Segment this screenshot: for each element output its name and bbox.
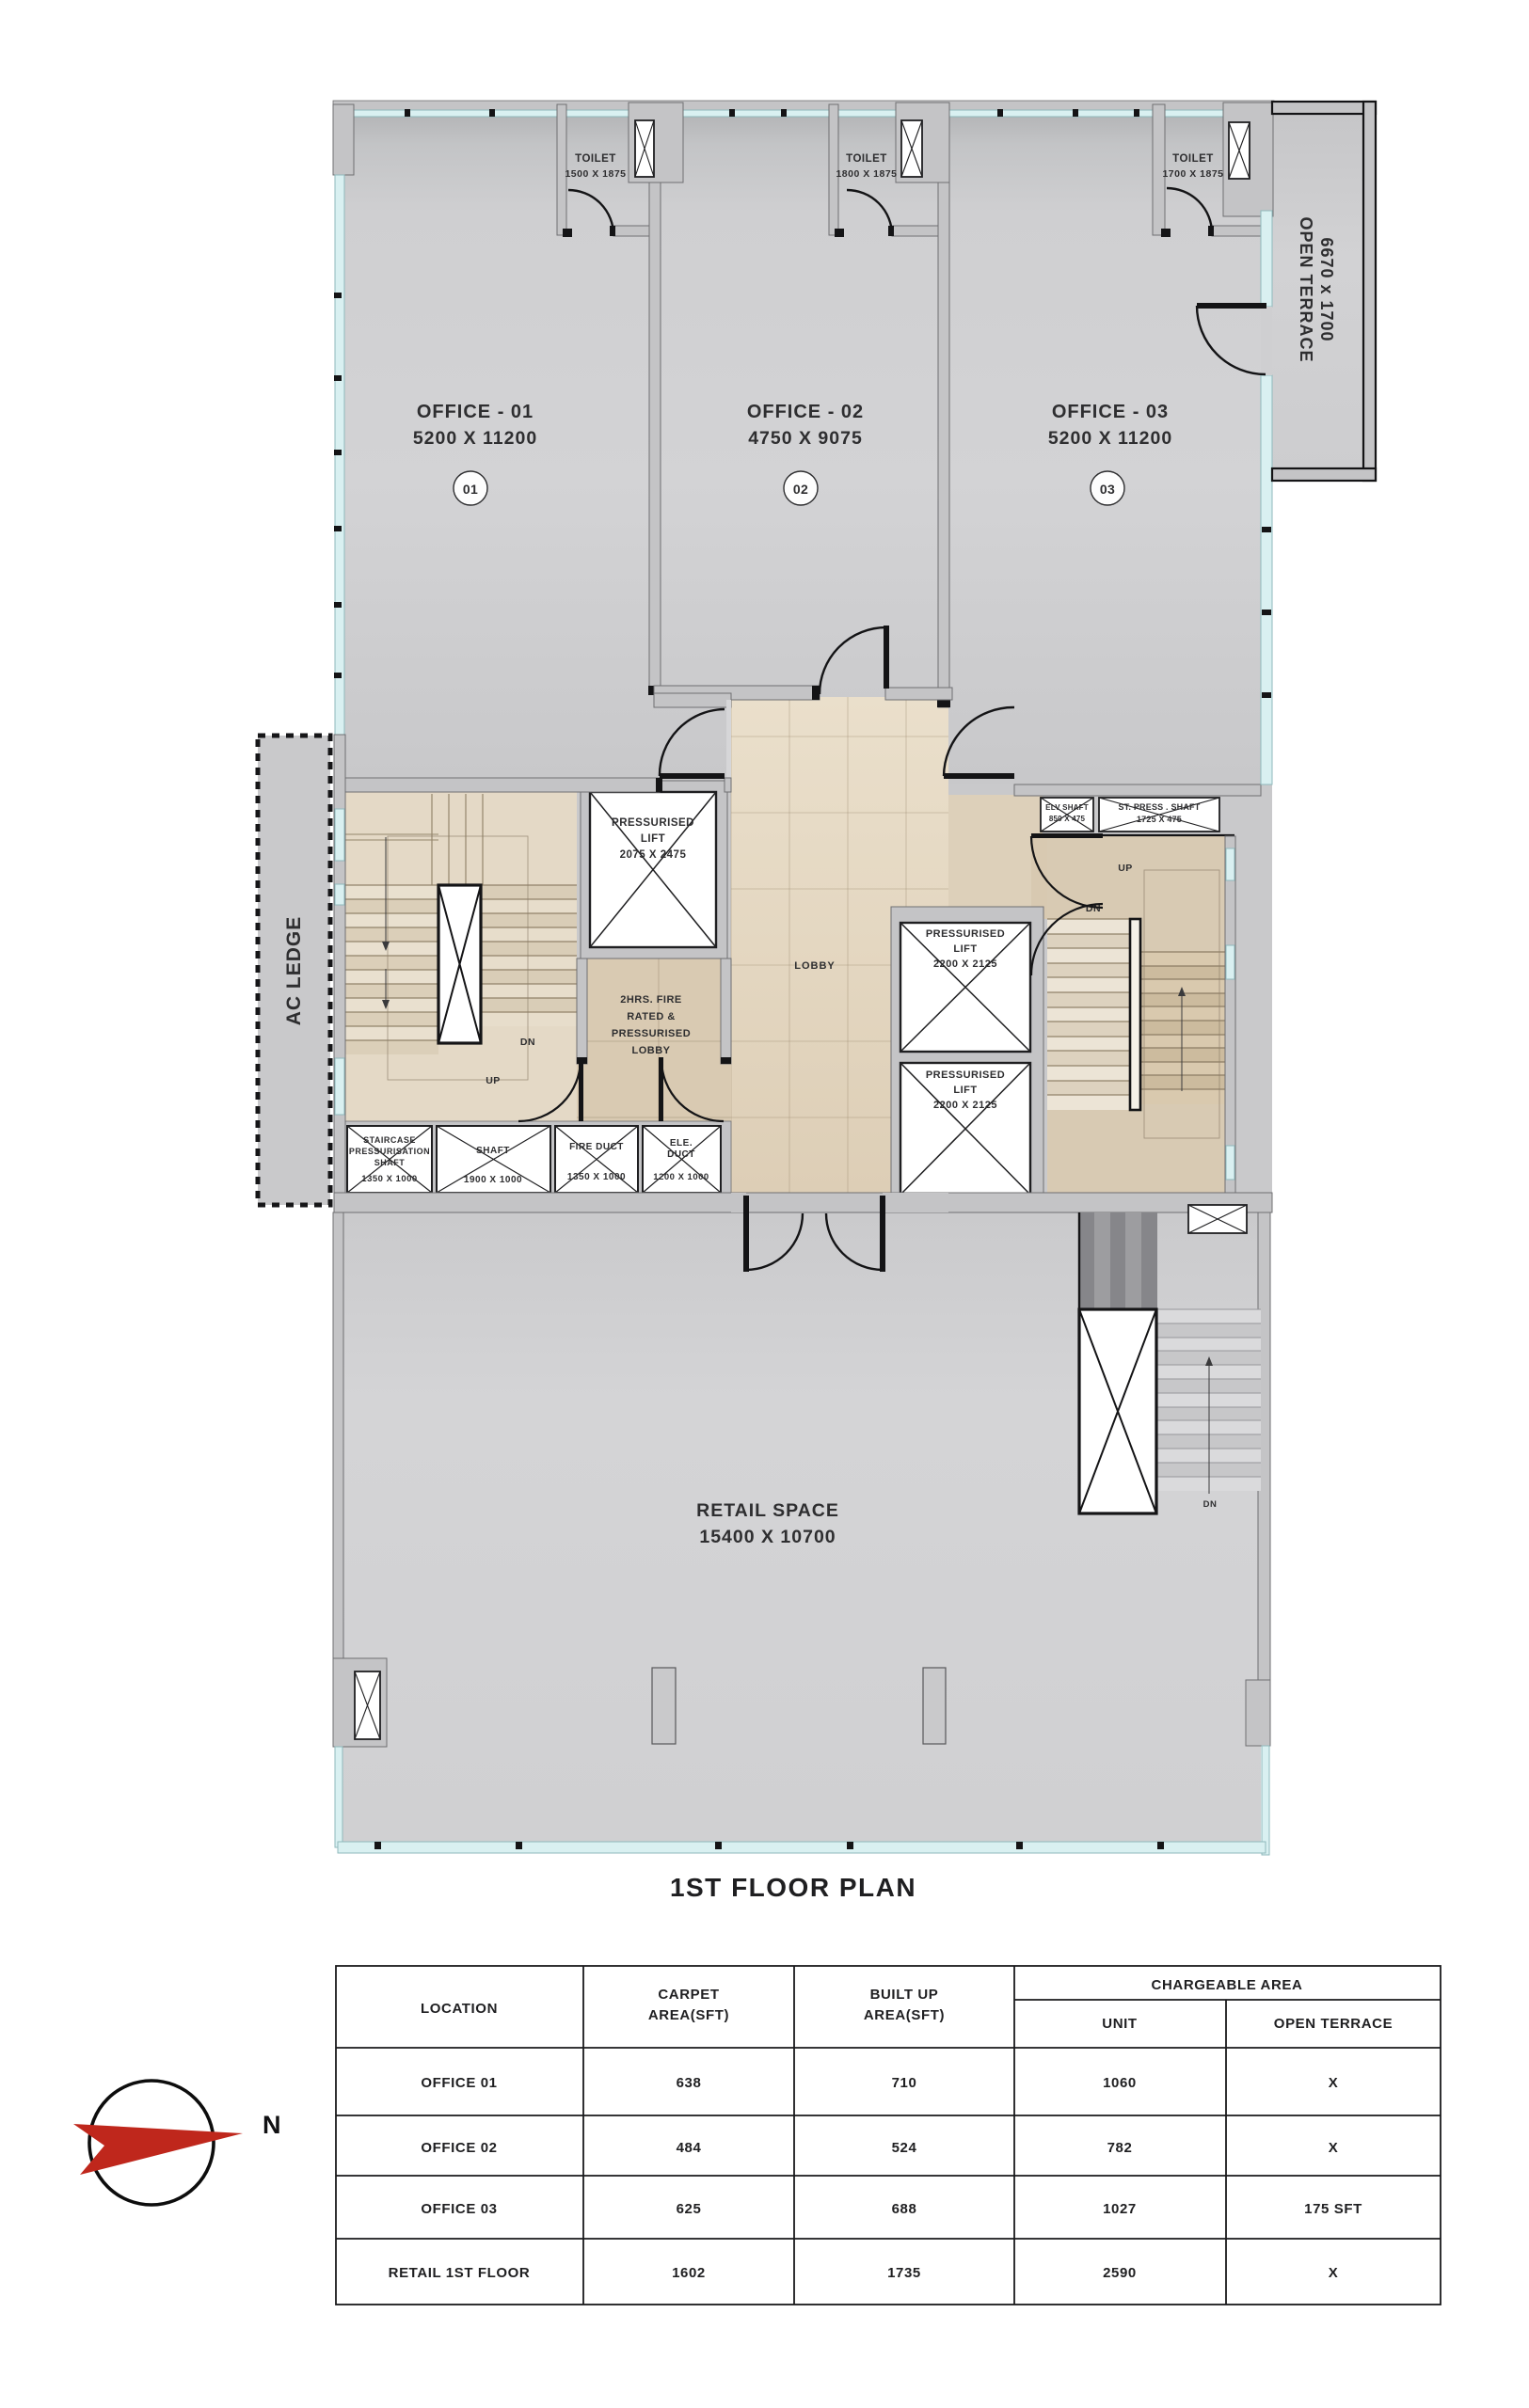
svg-text:1200 X 1000: 1200 X 1000 (653, 1172, 709, 1182)
svg-text:ST. PRESS . SHAFT: ST. PRESS . SHAFT (1119, 802, 1201, 812)
svg-text:UNIT: UNIT (1102, 2016, 1137, 2032)
svg-text:TOILET: TOILET (575, 153, 616, 165)
svg-text:PRESSURISED: PRESSURISED (926, 1069, 1005, 1081)
svg-text:N: N (263, 2111, 281, 2139)
svg-text:1350 X 1000: 1350 X 1000 (567, 1172, 626, 1182)
svg-text:1602: 1602 (672, 2265, 706, 2281)
svg-text:LIFT: LIFT (953, 1085, 977, 1096)
svg-text:01: 01 (463, 482, 478, 497)
svg-text:2200 X 2125: 2200 X 2125 (933, 1100, 997, 1111)
svg-text:1735: 1735 (887, 2265, 921, 2281)
svg-text:782: 782 (1107, 2140, 1133, 2156)
svg-text:1060: 1060 (1103, 2075, 1137, 2091)
svg-text:03: 03 (1100, 482, 1115, 497)
svg-text:175 SFT: 175 SFT (1304, 2201, 1362, 2217)
svg-text:2200 X 2125: 2200 X 2125 (933, 958, 997, 970)
svg-text:ELE.: ELE. (670, 1138, 693, 1149)
svg-text:TOILET: TOILET (1172, 153, 1214, 165)
svg-text:STAIRCASE: STAIRCASE (363, 1135, 416, 1145)
svg-text:524: 524 (892, 2140, 917, 2156)
svg-text:LIFT: LIFT (953, 943, 977, 955)
svg-text:ELV SHAFT: ELV SHAFT (1045, 803, 1089, 812)
svg-text:SHAFT: SHAFT (374, 1158, 406, 1167)
svg-text:LOBBY: LOBBY (794, 960, 836, 972)
svg-text:1800 X 1875: 1800 X 1875 (836, 168, 897, 180)
svg-text:CHARGEABLE AREA: CHARGEABLE AREA (1152, 1977, 1303, 1993)
svg-text:15400 X 10700: 15400 X 10700 (699, 1527, 836, 1547)
svg-text:1350 X 1000: 1350 X 1000 (361, 1174, 417, 1184)
svg-text:688: 688 (892, 2201, 917, 2217)
svg-text:BUILT UP: BUILT UP (870, 1987, 939, 2003)
svg-text:850 X 475: 850 X 475 (1049, 815, 1086, 823)
svg-text:710: 710 (892, 2075, 917, 2091)
svg-text:1700 X 1875: 1700 X 1875 (1162, 168, 1223, 180)
svg-text:OPEN TERRACE: OPEN TERRACE (1274, 2016, 1393, 2032)
svg-text:6670 x 1700: 6670 x 1700 (1317, 237, 1336, 341)
svg-text:5200 X 11200: 5200 X 11200 (1048, 428, 1172, 449)
svg-text:PRESSURISATION: PRESSURISATION (349, 1147, 430, 1156)
svg-text:OPEN TERRACE: OPEN TERRACE (1297, 216, 1315, 362)
svg-text:DN: DN (520, 1037, 535, 1048)
svg-text:OFFICE - 02: OFFICE - 02 (747, 402, 864, 422)
svg-text:OFFICE - 01: OFFICE - 01 (417, 402, 534, 422)
svg-text:UP: UP (486, 1075, 501, 1086)
svg-text:PRESSURISED: PRESSURISED (926, 928, 1005, 940)
svg-text:PRESSURISED: PRESSURISED (612, 1028, 691, 1039)
svg-text:1725 X 475: 1725 X 475 (1137, 815, 1182, 824)
svg-text:2HRS. FIRE: 2HRS. FIRE (620, 994, 682, 1006)
svg-text:TOILET: TOILET (846, 153, 887, 165)
svg-text:1500 X 1875: 1500 X 1875 (565, 168, 626, 180)
svg-text:625: 625 (677, 2201, 702, 2217)
svg-text:DN: DN (1203, 1499, 1218, 1510)
svg-text:DUCT: DUCT (667, 1149, 695, 1160)
svg-text:02: 02 (793, 482, 808, 497)
svg-text:OFFICE 01: OFFICE 01 (421, 2075, 497, 2091)
svg-text:OFFICE 02: OFFICE 02 (421, 2140, 497, 2156)
svg-text:PRESSURISED: PRESSURISED (612, 817, 694, 829)
svg-text:LIFT: LIFT (641, 833, 665, 845)
svg-text:1ST FLOOR PLAN: 1ST FLOOR PLAN (670, 1873, 916, 1902)
svg-text:1900 X 1000: 1900 X 1000 (464, 1175, 522, 1185)
svg-text:X: X (1329, 2140, 1339, 2156)
svg-text:2075 X 2475: 2075 X 2475 (620, 849, 687, 861)
svg-text:AC LEDGE: AC LEDGE (283, 916, 305, 1026)
svg-text:5200 X 11200: 5200 X 11200 (413, 428, 537, 449)
svg-text:4750 X 9075: 4750 X 9075 (748, 428, 863, 449)
svg-text:RETAIL 1ST FLOOR: RETAIL 1ST FLOOR (389, 2265, 531, 2281)
svg-text:LOBBY: LOBBY (632, 1045, 671, 1056)
svg-text:AREA(SFT): AREA(SFT) (648, 2007, 729, 2023)
svg-text:484: 484 (677, 2140, 702, 2156)
svg-text:2590: 2590 (1103, 2265, 1137, 2281)
svg-text:X: X (1329, 2075, 1339, 2091)
svg-text:RETAIL SPACE: RETAIL SPACE (696, 1500, 839, 1521)
svg-text:638: 638 (677, 2075, 702, 2091)
svg-text:RATED &: RATED & (627, 1011, 676, 1022)
svg-text:FIRE DUCT: FIRE DUCT (569, 1142, 624, 1152)
svg-text:AREA(SFT): AREA(SFT) (864, 2007, 945, 2023)
svg-text:X: X (1329, 2265, 1339, 2281)
svg-text:SHAFT: SHAFT (476, 1146, 510, 1156)
svg-text:UP: UP (1118, 863, 1133, 874)
svg-text:OFFICE - 03: OFFICE - 03 (1052, 402, 1169, 422)
svg-text:1027: 1027 (1103, 2201, 1137, 2217)
svg-text:LOCATION: LOCATION (421, 2001, 498, 2017)
svg-text:CARPET: CARPET (658, 1987, 719, 2003)
svg-text:OFFICE 03: OFFICE 03 (421, 2201, 497, 2217)
